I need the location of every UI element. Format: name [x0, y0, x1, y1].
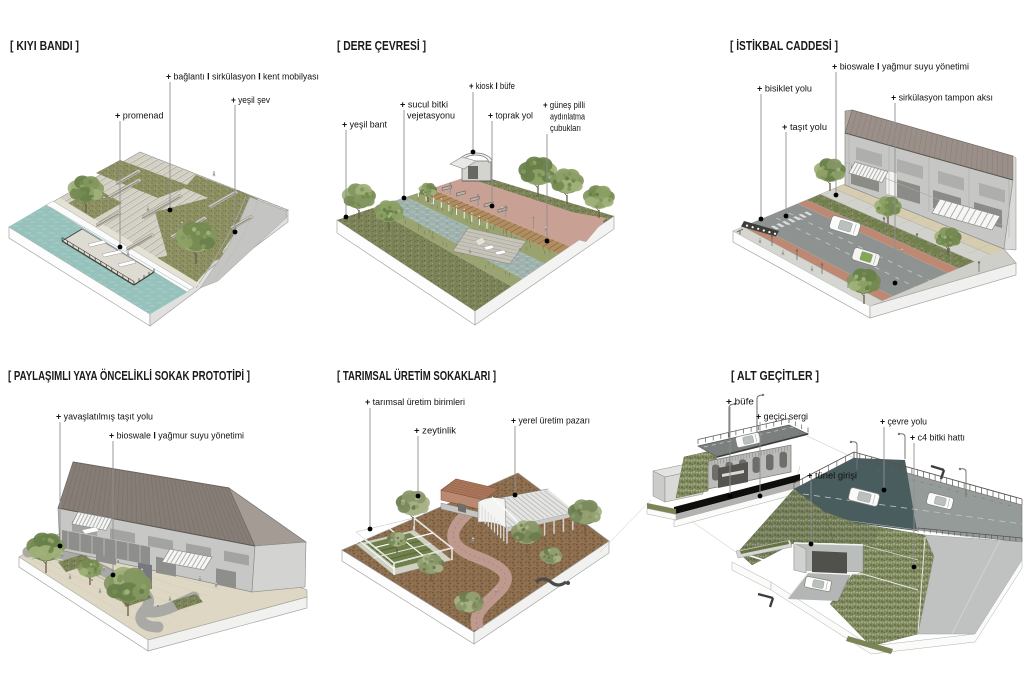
svg-text:+ toprak yol: + toprak yol [488, 111, 533, 122]
svg-text:vejetasyonu: vejetasyonu [407, 111, 455, 122]
svg-text:+ bağlantı I sirkülasyon I ken: + bağlantı I sirkülasyon I kent mobilyas… [166, 72, 319, 83]
svg-text:+ büfe: + büfe [726, 397, 754, 408]
svg-text:[ KIYI BANDI ]: [ KIYI BANDI ] [10, 39, 79, 53]
svg-text:[ ALT GEÇİTLER ]: [ ALT GEÇİTLER ] [731, 368, 819, 383]
svg-text:+ sirkülasyon tampon aksı: + sirkülasyon tampon aksı [891, 93, 993, 104]
svg-text:+ bioswale I yağmur suyu yönet: + bioswale I yağmur suyu yönetimi [832, 62, 969, 73]
svg-text:+ kiosk I büfe: + kiosk I büfe [469, 81, 515, 92]
svg-text:[ TARIMSAL ÜRETİM SOKAKLARI ]: [ TARIMSAL ÜRETİM SOKAKLARI ] [337, 368, 496, 383]
svg-text:+ güneş pilli: + güneş pilli [543, 100, 585, 111]
svg-text:+ yeşil şev: + yeşil şev [231, 95, 270, 106]
svg-text:+ geçici sergi: + geçici sergi [756, 412, 808, 423]
svg-text:+ bioswale I yağmur suyu yönet: + bioswale I yağmur suyu yönetimi [109, 431, 244, 442]
svg-text:+ c4 bitki hattı: + c4 bitki hattı [910, 433, 965, 444]
svg-text:çubukları: çubukları [550, 123, 581, 134]
svg-text:[ İSTİKBAL CADDESİ ]: [ İSTİKBAL CADDESİ ] [730, 38, 838, 53]
svg-text:+ zeytinlik: + zeytinlik [414, 426, 456, 437]
svg-text:+ yavaşlatılmış taşıt yolu: + yavaşlatılmış taşıt yolu [56, 412, 153, 423]
svg-text:aydınlatma: aydınlatma [550, 112, 585, 123]
svg-text:[ PAYLAŞIMLI YAYA ÖNCELİKLİ SO: [ PAYLAŞIMLI YAYA ÖNCELİKLİ SOKAK PROTOT… [8, 368, 250, 383]
svg-text:+ yerel üretim pazarı: + yerel üretim pazarı [511, 416, 590, 427]
svg-text:+ tünel girişi: + tünel girişi [807, 471, 857, 482]
svg-text:+ taşıt yolu: + taşıt yolu [782, 122, 827, 133]
svg-text:+ sucul bitki: + sucul bitki [400, 100, 448, 111]
svg-text:+ bisiklet yolu: + bisiklet yolu [757, 84, 812, 95]
svg-text:[ DERE ÇEVRESİ ]: [ DERE ÇEVRESİ ] [337, 38, 426, 53]
svg-text:+ promenad: + promenad [115, 111, 164, 122]
svg-text:+ yeşil bant: + yeşil bant [342, 120, 387, 131]
svg-text:+ tarımsal üretim birimleri: + tarımsal üretim birimleri [365, 397, 465, 408]
svg-text:+ çevre yolu: + çevre yolu [880, 417, 927, 428]
